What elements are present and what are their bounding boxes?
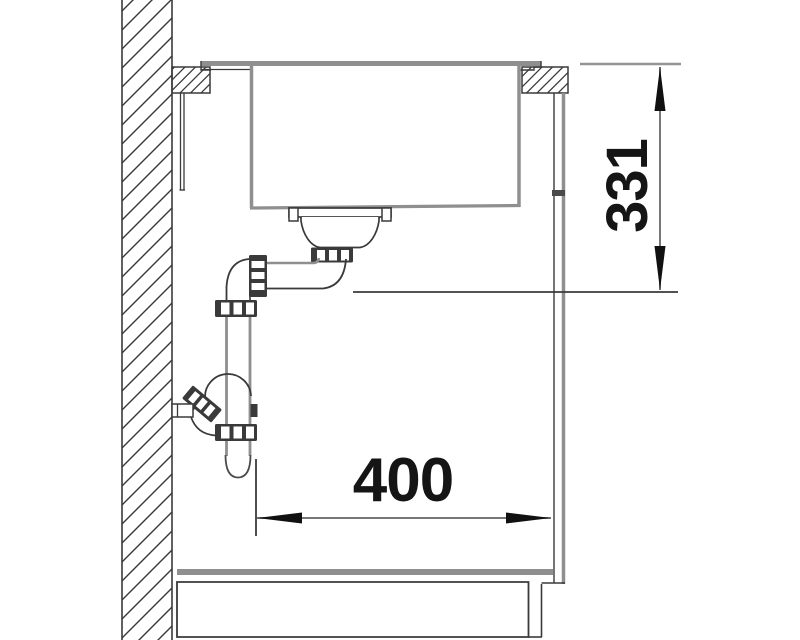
trap-upper-nut-slot [221, 303, 230, 315]
countertop-right-block [522, 67, 568, 93]
strainer-nut-slot [329, 250, 337, 261]
width-dimension-label: 400 [353, 446, 453, 515]
elbow-outer-curve [227, 259, 250, 300]
countertop-left-block [172, 67, 210, 93]
pipe-clip [251, 404, 258, 417]
strainer-flange [289, 208, 391, 217]
plinth-panel [177, 582, 529, 637]
trap-lower-nut-slot [246, 427, 254, 439]
width-arrow-right [506, 513, 551, 524]
cabinet-bottom-shelf [177, 569, 553, 575]
cabinet [177, 93, 565, 637]
dimension-width: 400 [256, 446, 551, 536]
trap-upper-nut-slot [246, 303, 254, 315]
technical-drawing-page: 331 400 [0, 0, 800, 640]
elbow-nut-slot [252, 261, 265, 268]
trap-upper-nut-slot [234, 303, 243, 315]
siphon-trap [172, 300, 258, 478]
strainer-flange-right-cap [382, 208, 391, 221]
trap-bottom-cap [226, 455, 251, 478]
dimension-height: 331 [353, 64, 681, 292]
width-arrow-left [257, 513, 302, 524]
drain-strainer [289, 208, 391, 263]
trap-arch [205, 374, 251, 398]
elbow-nut-slot [252, 283, 265, 290]
wall-section [122, 0, 172, 640]
trap-lower-nut-slot [221, 427, 230, 439]
elbow-nut-slot [252, 272, 265, 279]
height-dimension-label: 331 [595, 139, 660, 233]
sink-rim [201, 61, 541, 66]
wall-hatch [122, 0, 172, 640]
strainer-nut-slot [341, 250, 349, 261]
height-arrow-up [655, 67, 666, 111]
countertop [172, 61, 568, 93]
side-panel-joint-mark [552, 190, 565, 196]
wall-outlet-stub [172, 404, 193, 417]
height-arrow-down [655, 246, 666, 290]
sink-bowl [250, 66, 520, 208]
strainer-body [301, 217, 379, 248]
trap-lower-nut-slot [234, 427, 243, 439]
strainer-flange-left-cap [289, 208, 298, 221]
tailpipe-top-edge [263, 258, 319, 263]
diagram-canvas: 331 400 [0, 0, 800, 640]
